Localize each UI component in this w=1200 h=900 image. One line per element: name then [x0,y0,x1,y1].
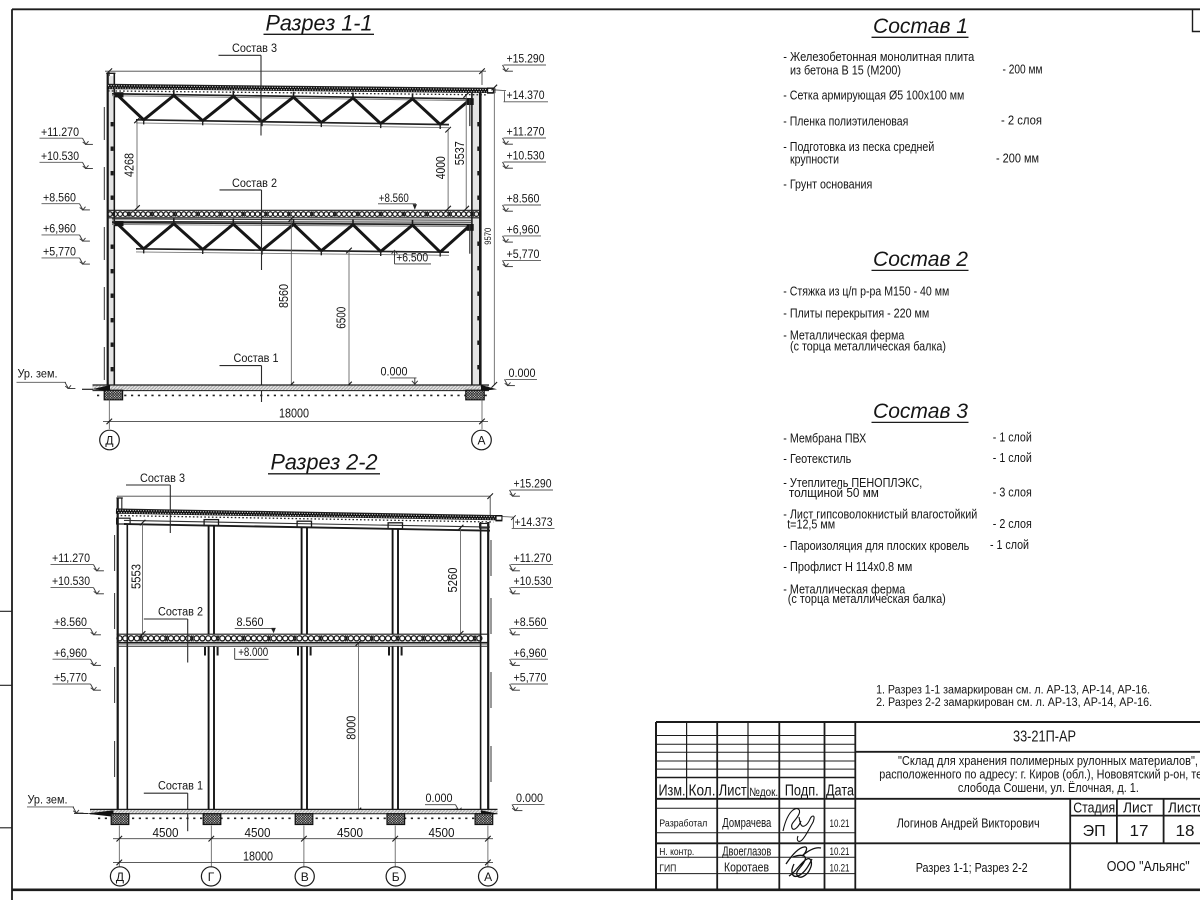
svg-text:Состав 1: Состав 1 [234,353,279,365]
svg-text:- 200 мм: - 200 мм [1003,62,1043,77]
svg-text:9570: 9570 [483,228,494,245]
svg-text:+8.560: +8.560 [54,617,87,629]
svg-text:0.000: 0.000 [426,793,453,805]
svg-text:(с торца металлическая балка): (с торца металлическая балка) [788,591,946,606]
svg-text:- Геотекстиль: - Геотекстиль [783,451,851,466]
svg-text:10.21: 10.21 [830,863,850,875]
svg-text:Состав 1: Состав 1 [873,15,968,38]
svg-text:33-21П-АР: 33-21П-АР [1013,729,1076,746]
svg-text:- Стяжка из ц/п р-ра М150 - 40: - Стяжка из ц/п р-ра М150 - 40 мм [783,284,949,299]
svg-text:t=12,5 мм: t=12,5 мм [787,516,835,531]
svg-text:Стадия: Стадия [1073,800,1115,817]
svg-text:Кол.: Кол. [689,782,716,799]
svg-text:10.21: 10.21 [830,818,850,830]
svg-text:Разрез 1-1; Разрез 2-2: Разрез 1-1; Разрез 2-2 [916,860,1028,875]
svg-text:+6,960: +6,960 [43,224,76,236]
svg-text:+11.270: +11.270 [52,553,90,565]
svg-text:Листов: Листов [1168,800,1200,817]
svg-text:2. Разрез 2-2 замаркирован см.: 2. Разрез 2-2 замаркирован см. л. АР-13,… [876,697,1152,709]
svg-text:- Мембрана ПВХ: - Мембрана ПВХ [783,430,866,445]
svg-text:5260: 5260 [446,567,460,592]
svg-text:Состав 1: Состав 1 [158,781,203,793]
svg-text:+6,960: +6,960 [507,225,540,237]
svg-text:Подп.: Подп. [785,782,819,799]
svg-text:4500: 4500 [153,826,179,840]
svg-text:0.000: 0.000 [516,793,543,805]
svg-text:+6.500: +6.500 [396,253,428,265]
svg-text:+6,960: +6,960 [514,648,547,660]
svg-text:+15.290: +15.290 [514,479,552,491]
svg-text:4000: 4000 [434,156,448,179]
svg-text:+8.000: +8.000 [238,647,268,659]
svg-text:Н. контр.: Н. контр. [659,846,694,858]
svg-text:- 3 слоя: - 3 слоя [993,485,1032,500]
svg-text:Состав 3: Состав 3 [873,400,968,423]
svg-text:+11.270: +11.270 [514,553,552,565]
svg-text:Двоеглазов: Двоеглазов [722,845,771,859]
svg-text:+8.560: +8.560 [514,617,547,629]
svg-text:ООО "Альянс": ООО "Альянс" [1107,858,1190,875]
svg-text:+11.270: +11.270 [41,127,79,139]
svg-text:Дата: Дата [826,782,854,799]
svg-text:толщиной 50 мм: толщиной 50 мм [789,485,879,500]
svg-text:Состав 3: Состав 3 [232,43,277,55]
svg-text:+11.270: +11.270 [507,127,545,139]
svg-text:- Пленка полиэтиленовая: - Пленка полиэтиленовая [783,114,908,129]
svg-text:ГИП: ГИП [659,862,676,874]
svg-text:Г: Г [208,870,215,884]
svg-text:Лист: Лист [719,782,747,799]
svg-text:крупности: крупности [790,152,839,167]
svg-text:0.000: 0.000 [381,367,408,379]
svg-text:4500: 4500 [429,826,455,840]
svg-text:+5,770: +5,770 [507,249,540,261]
svg-text:расположенного по адресу: г. К: расположенного по адресу: г. Киров (обл.… [879,768,1200,782]
svg-text:+15.290: +15.290 [507,54,545,66]
svg-text:5537: 5537 [453,141,467,165]
svg-text:"Склад для хранения полимерных: "Склад для хранения полимерных рулонных … [898,754,1198,768]
svg-text:Ур. зем.: Ур. зем. [18,369,58,381]
svg-text:Д: Д [105,433,113,447]
svg-text:Лист: Лист [1123,800,1153,817]
svg-text:Д: Д [116,870,124,884]
svg-text:- 2 слоя: - 2 слоя [1001,113,1042,128]
svg-text:8.560: 8.560 [237,617,264,629]
svg-text:из бетона В 15 (М200): из бетона В 15 (М200) [790,63,901,78]
svg-text:Логинов Андрей Викторович: Логинов Андрей Викторович [897,817,1040,831]
svg-text:4500: 4500 [245,826,271,840]
svg-text:В: В [301,870,309,884]
svg-text:- Грунт основания: - Грунт основания [783,177,872,192]
svg-text:+5,770: +5,770 [43,247,76,259]
svg-text:(с торца металлическая балка): (с торца металлическая балка) [790,339,946,354]
svg-text:Разработал: Разработал [659,817,707,829]
svg-text:Изм.: Изм. [659,782,686,799]
svg-text:+5,770: +5,770 [514,673,547,685]
svg-text:+10.530: +10.530 [41,151,79,163]
svg-text:+10.530: +10.530 [507,151,545,163]
svg-text:ЭП: ЭП [1083,823,1106,840]
svg-text:+10.530: +10.530 [514,576,552,588]
svg-text:4268: 4268 [123,153,137,177]
svg-text:- 200 мм: - 200 мм [996,151,1039,166]
svg-text:Состав 3: Состав 3 [140,473,185,485]
svg-text:6500: 6500 [335,307,349,329]
svg-text:- 1 слой: - 1 слой [990,537,1029,552]
svg-text:8560: 8560 [277,284,291,308]
svg-text:18000: 18000 [279,406,309,420]
svg-text:1. Разрез 1-1 замаркирован см.: 1. Разрез 1-1 замаркирован см. л. АР-13,… [876,685,1150,697]
svg-text:5553: 5553 [130,564,144,589]
svg-text:0.000: 0.000 [509,368,536,380]
svg-text:Б: Б [392,870,400,884]
svg-text:Разрез 2-2: Разрез 2-2 [271,450,378,475]
svg-text:18000: 18000 [243,849,273,863]
svg-text:+8.560: +8.560 [43,192,76,204]
svg-text:- Сетка армирующая Ø5 100х100: - Сетка армирующая Ø5 100х100 мм [783,88,964,103]
svg-text:- 1 слой: - 1 слой [993,450,1032,465]
svg-text:4500: 4500 [337,826,363,840]
svg-text:+8.560: +8.560 [507,194,540,206]
svg-text:+10.530: +10.530 [52,576,90,588]
svg-text:+5,770: +5,770 [54,673,87,685]
svg-text:+14.373: +14.373 [515,517,553,529]
svg-text:- Плиты перекрытия - 220 мм: - Плиты перекрытия - 220 мм [783,306,929,321]
svg-text:Коротаев: Коротаев [724,861,769,875]
svg-text:- 2 слоя: - 2 слоя [993,516,1032,531]
svg-text:- 1 слой: - 1 слой [993,430,1032,445]
svg-text:Разрез 1-1: Разрез 1-1 [266,11,373,36]
svg-text:10.21: 10.21 [830,846,850,858]
svg-text:А: А [477,433,485,447]
svg-text:Ур. зем.: Ур. зем. [28,795,68,807]
svg-text:17: 17 [1130,823,1149,840]
svg-text:Состав 2: Состав 2 [232,178,277,190]
svg-text:- Пароизоляция для плоских кро: - Пароизоляция для плоских кровель [783,538,969,553]
svg-text:слобода Сошени, ул. Ёлочная, д: слобода Сошени, ул. Ёлочная, д. 1. [958,781,1139,795]
svg-text:Состав 2: Состав 2 [873,248,968,271]
svg-text:18: 18 [1176,823,1195,840]
svg-text:+6,960: +6,960 [54,648,87,660]
svg-text:+14.370: +14.370 [507,90,545,102]
svg-text:+8.560: +8.560 [379,193,409,205]
svg-text:- Профлист Н 114х0.8 мм: - Профлист Н 114х0.8 мм [783,559,912,574]
svg-text:А: А [484,870,492,884]
svg-text:№док.: №док. [749,785,778,799]
svg-text:Домрачева: Домрачева [722,816,771,830]
svg-text:Состав 2: Состав 2 [158,607,203,619]
svg-text:8000: 8000 [345,716,359,740]
